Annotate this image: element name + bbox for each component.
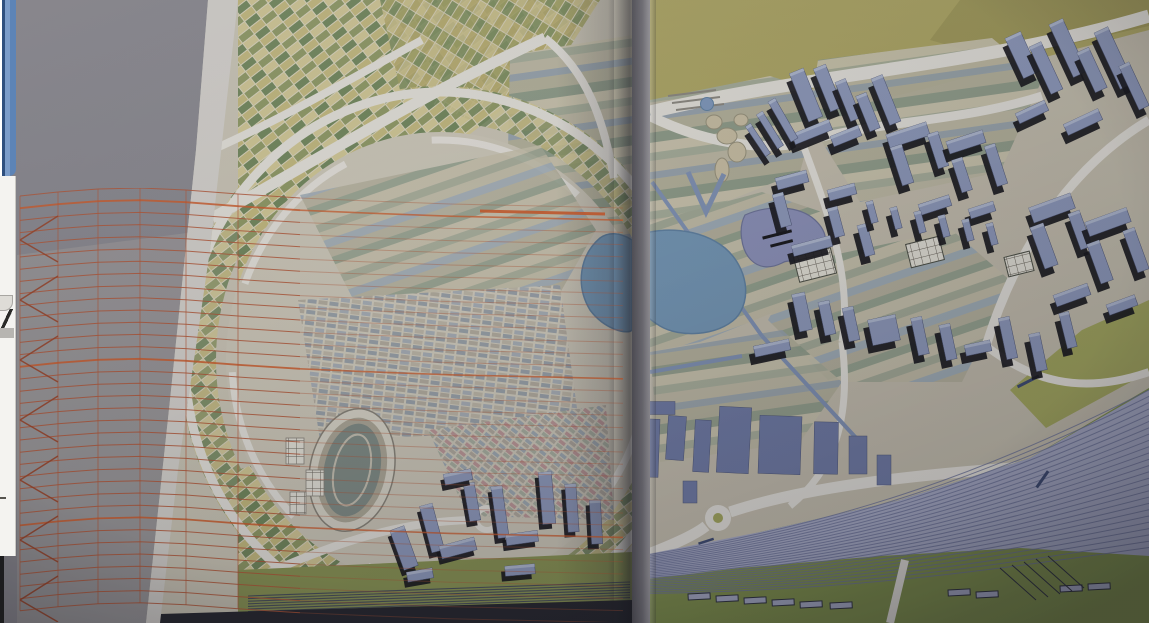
tiny-dash [0,497,6,499]
background-window-border[interactable] [0,0,16,176]
pen-stroke-icon [0,309,14,328]
book-photograph [0,0,1149,623]
background-panel[interactable] [0,176,16,556]
screen-dark-edge [0,556,4,623]
photo-vignette [0,0,1149,623]
screenshot-root [0,0,1149,623]
gray-band [0,328,14,338]
left-window-sliver [0,0,17,623]
